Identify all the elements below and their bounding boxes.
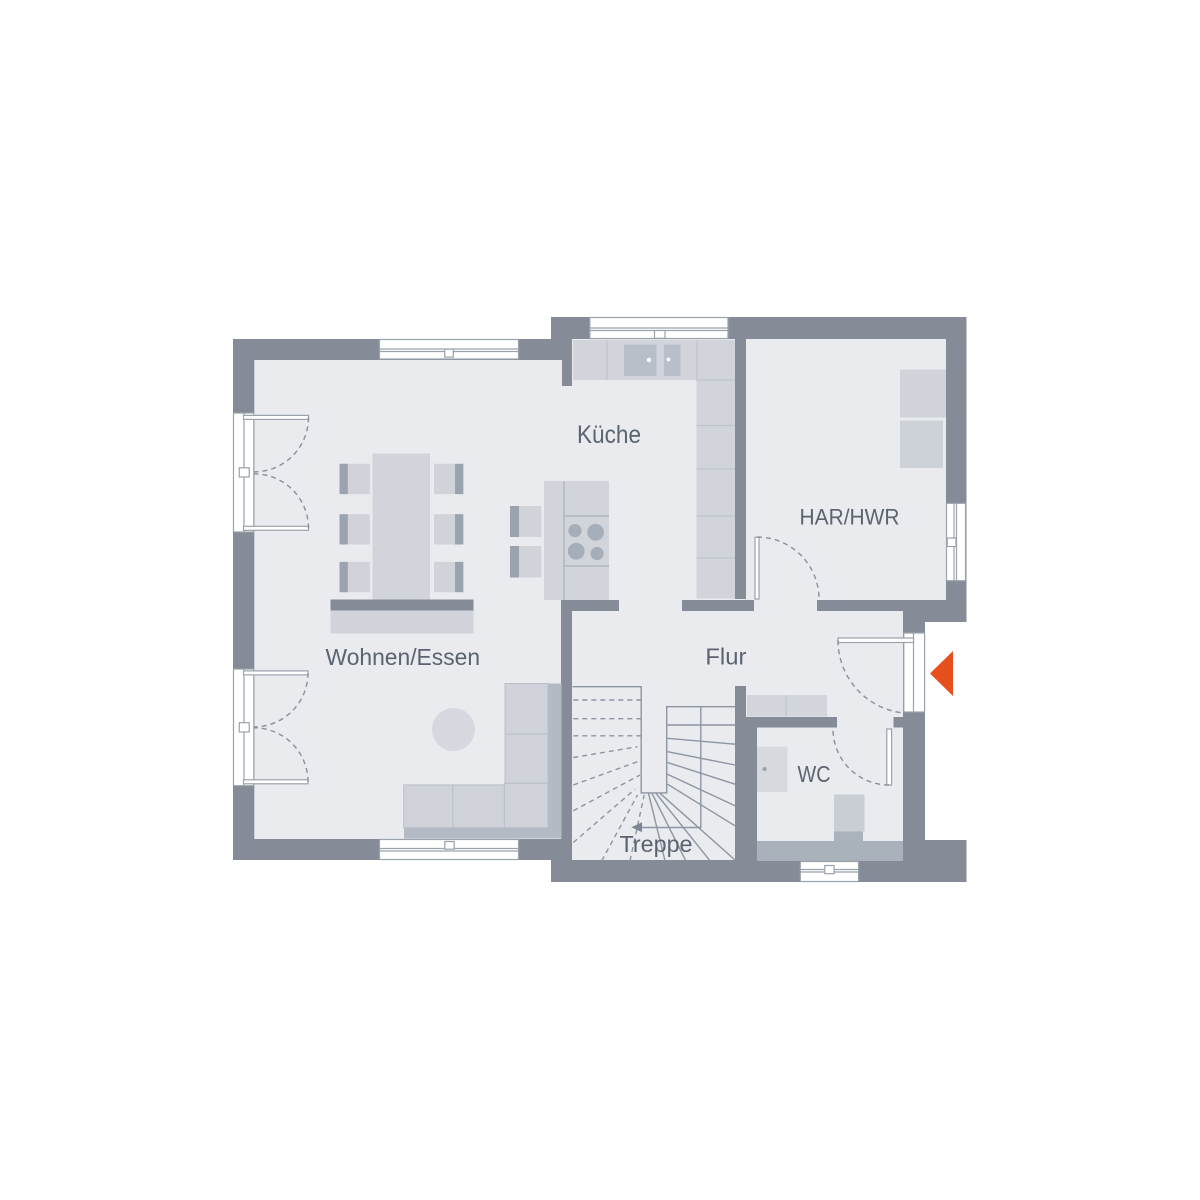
svg-text:Wohnen/Essen: Wohnen/Essen: [326, 644, 481, 670]
svg-text:Treppe: Treppe: [620, 831, 693, 857]
svg-text:Flur: Flur: [705, 644, 746, 670]
svg-text:WC: WC: [798, 761, 831, 787]
svg-text:HAR/HWR: HAR/HWR: [800, 505, 900, 530]
svg-text:Küche: Küche: [577, 421, 641, 449]
